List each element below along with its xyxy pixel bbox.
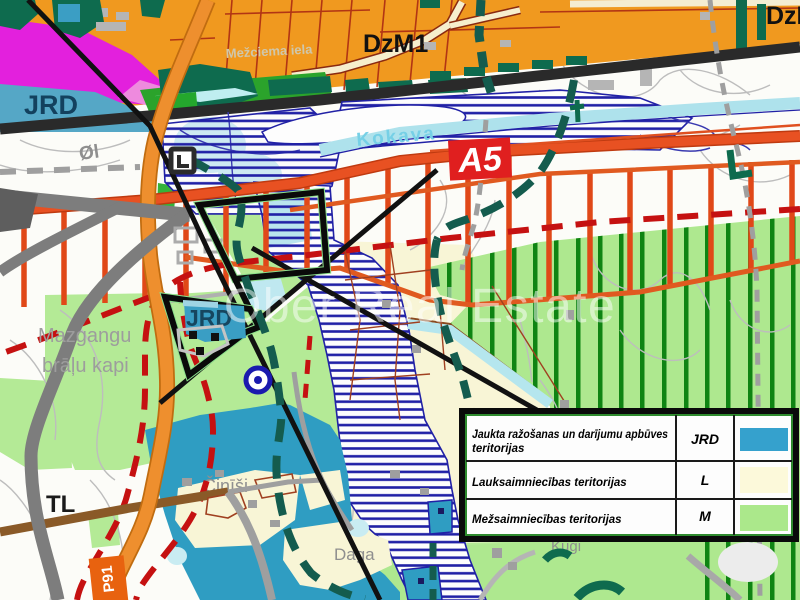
svg-text:brāļu kapi: brāļu kapi: [42, 355, 129, 377]
svg-text:TL: TL: [46, 491, 75, 518]
svg-text:L: L: [701, 472, 710, 488]
svg-text:Jaukta ražošanas un darījumu a: Jaukta ražošanas un darījumu apbūves: [472, 429, 668, 441]
svg-text:teritorijas: teritorijas: [472, 443, 524, 455]
svg-text:DzM1: DzM1: [363, 30, 428, 58]
svg-text:P91: P91: [99, 565, 119, 593]
svg-text:Mazgangu: Mazgangu: [38, 325, 131, 347]
svg-text:Lauksaimniecības teritorijas: Lauksaimniecības teritorijas: [472, 477, 627, 489]
svg-text:Mežsaimniecības teritorijas: Mežsaimniecības teritorijas: [472, 514, 622, 526]
svg-text:DzM: DzM: [766, 2, 800, 30]
svg-text:M: M: [699, 508, 711, 524]
svg-text:JRD: JRD: [24, 90, 78, 120]
svg-text:JRD: JRD: [691, 431, 719, 447]
svg-text:Ober Real Estate: Ober Real Estate: [224, 280, 616, 333]
svg-text:Øl: Øl: [78, 141, 101, 165]
svg-text:A5: A5: [456, 140, 503, 180]
